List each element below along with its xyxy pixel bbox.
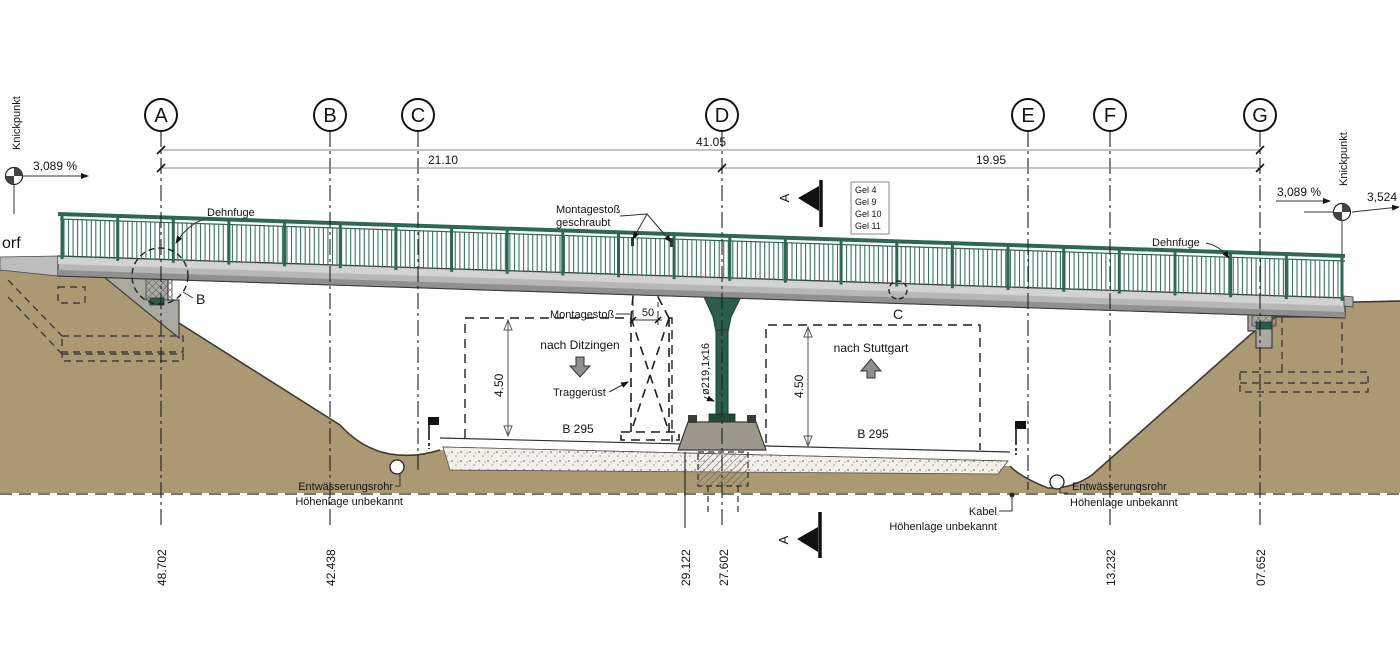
axis-label-b: B (323, 105, 336, 127)
dim-left-span: 21.10 (428, 153, 458, 167)
knickpunkt-left: Knickpunkt 3,089 % (6, 96, 89, 214)
detail-c-label: C (893, 306, 903, 322)
bridge-deck (0, 256, 1353, 318)
stations: 48.702 42.438 29.122 27.602 13.232 07.65… (155, 549, 1268, 586)
bridge-elevation-drawing: 4.50 4.50 (0, 0, 1400, 650)
axis-label-f: F (1104, 105, 1116, 127)
falsework-label: Traggerüst (553, 387, 606, 399)
pier (678, 297, 766, 450)
to-ditzingen-label: nach Ditzingen (540, 338, 619, 352)
direction-down-arrow-icon (570, 357, 590, 377)
dehnfuge-left-label: Dehnfuge (207, 207, 255, 219)
grade-right2-value: 3,524 (1367, 190, 1397, 204)
montage-splice-line1: Montagestoß (556, 204, 620, 216)
montage-label: Montagestoß (550, 309, 614, 321)
gel-line-1: Gel 4 (855, 185, 877, 195)
drainage-left-line2: Höhenlage unbekannt (295, 496, 403, 508)
dimension-lines: 41.05 21.10 19.95 (157, 135, 1264, 172)
drain-pipe-icon (1050, 475, 1064, 489)
gel-line-3: Gel 10 (855, 209, 882, 219)
axis-bubbles: A B C D E F G (145, 99, 1276, 131)
nach-ditzingen: nach Ditzingen (540, 338, 619, 377)
splice-dim-value: 50 (642, 307, 654, 319)
clearance-dim-left: 4.50 (492, 320, 512, 436)
dim-total: 41.05 (696, 135, 726, 149)
pile-section-dim: ø219,1x16 (700, 343, 714, 401)
axis-label-a: A (154, 105, 168, 127)
direction-up-arrow-icon (861, 359, 881, 378)
survey-point-icon (6, 168, 23, 185)
axis-label-c: C (411, 105, 425, 127)
section-marker-bottom: A (776, 512, 820, 558)
section-letter-top: A (777, 193, 792, 202)
clearance-left-value: 4.50 (492, 373, 506, 397)
gel-line-4: Gel 11 (855, 221, 881, 231)
drainage-right-line1: Entwässerungsrohr (1072, 481, 1167, 493)
station-f: 13.232 (1104, 549, 1118, 586)
detail-b-label: B (196, 291, 205, 307)
station-d: 27.602 (717, 549, 731, 586)
pile-section-value: ø219,1x16 (700, 343, 712, 395)
drawing-canvas: 4.50 4.50 (0, 0, 1400, 650)
clearance-right-value: 4.50 (792, 374, 806, 398)
pier-foundation (698, 452, 748, 514)
cut-word-left: orf (2, 235, 21, 252)
marker-post-left (428, 417, 439, 449)
survey-point-icon (1334, 204, 1351, 221)
station-extra: 29.122 (679, 549, 693, 586)
axis-label-g: G (1252, 105, 1268, 127)
grade-left-value: 3,089 % (33, 159, 77, 173)
traggeruest: Traggerüst (553, 382, 628, 399)
drain-pipe-icon (390, 460, 404, 474)
gel-line-2: Gel 9 (855, 197, 877, 207)
knickpunkt-left-label: Knickpunkt (11, 96, 23, 150)
dim-right-span: 19.95 (976, 153, 1006, 167)
nach-stuttgart: nach Stuttgart (834, 341, 909, 378)
road-label-left: B 295 (562, 422, 594, 436)
montagestoss: Montagestoß (550, 309, 630, 321)
dehnfuge-right-label: Dehnfuge (1152, 237, 1200, 249)
right-bearing (1256, 322, 1271, 329)
deck-end-block (1344, 296, 1353, 307)
marker-post-right (1015, 421, 1026, 455)
cable-line1: Kabel (969, 506, 997, 518)
clearance-dim-right: 4.50 (792, 327, 812, 446)
drainage-right-line2: Höhenlage unbekannt (1070, 497, 1178, 509)
station-b: 42.438 (324, 549, 338, 586)
montage-splice-line2: geschraubt (556, 217, 610, 229)
axis-label-d: D (715, 105, 729, 127)
axis-label-e: E (1021, 105, 1034, 127)
drainage-left-line1: Entwässerungsrohr (298, 481, 393, 493)
section-marker-top: A (777, 180, 821, 227)
road-label-right: B 295 (857, 427, 889, 441)
knickpunkt-right: Knickpunkt 3,089 % 3,524 (1276, 132, 1399, 255)
gel-box: Gel 4 Gel 9 Gel 10 Gel 11 (851, 182, 889, 234)
cable-line2: Höhenlage unbekannt (889, 521, 997, 533)
grade-right-value: 3,089 % (1277, 185, 1321, 199)
station-a: 48.702 (155, 549, 169, 586)
section-letter-bottom: A (776, 535, 791, 544)
knickpunkt-right-label: Knickpunkt (1338, 132, 1350, 186)
cable-label: Kabel Höhenlage unbekannt (889, 493, 1014, 534)
splice-dim-50: 50 (630, 307, 662, 325)
to-stuttgart-label: nach Stuttgart (834, 341, 909, 355)
station-g: 07.652 (1254, 549, 1268, 586)
